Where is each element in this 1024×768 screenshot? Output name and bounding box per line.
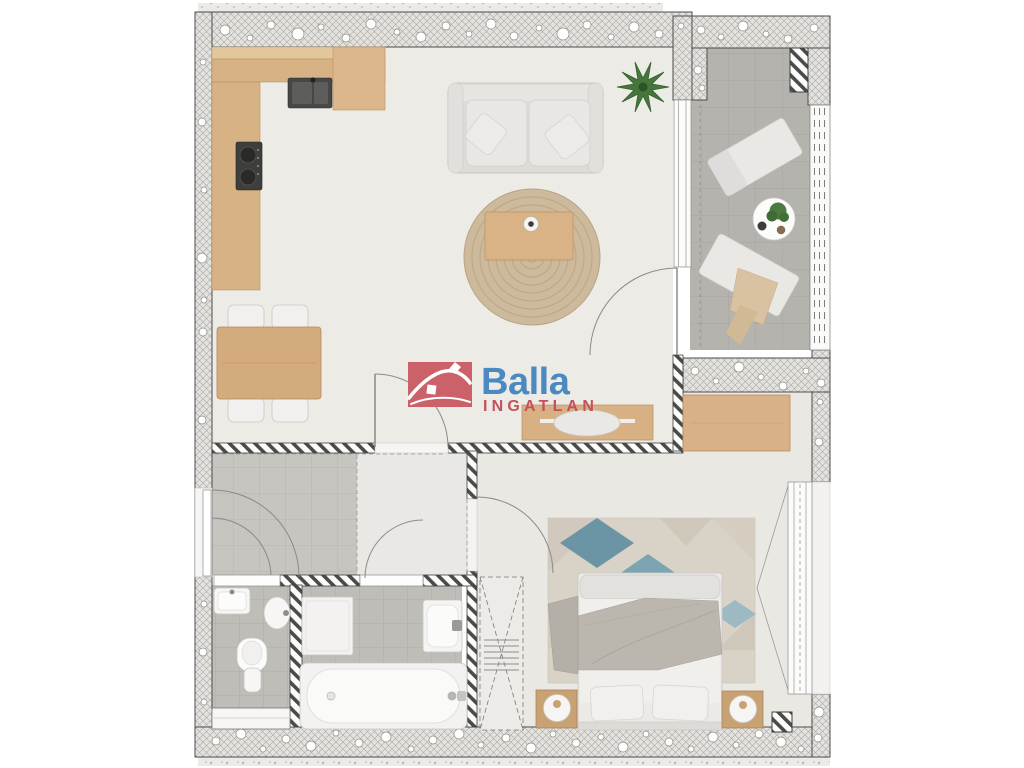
insulation-beads-bottom [355, 739, 363, 747]
dining-chair [228, 397, 264, 422]
insulation-beads-bedwall [734, 362, 744, 372]
wall-bedroom-top [683, 358, 830, 392]
wc-door-leaf [214, 575, 280, 586]
cooktop-burner [240, 147, 256, 163]
bath-door-leaf [360, 575, 423, 586]
balcony-plant [767, 211, 778, 222]
wc-basin-faucet [230, 590, 235, 595]
insulation-beads-top [442, 22, 450, 30]
insulation-beads-bottom [306, 741, 316, 751]
bedroom-window-sill [812, 482, 830, 694]
insulation-beads-bottom [598, 734, 604, 740]
insulation-beads-top [784, 35, 792, 43]
insulation-beads-top [678, 23, 684, 29]
house-window-icon [426, 385, 436, 395]
insulation-beads-bedwall [779, 382, 787, 390]
insulation-beads-bottom [755, 730, 763, 738]
sink-basin [292, 82, 312, 104]
insulation-beads-top [697, 26, 705, 34]
corner-pillar [790, 48, 808, 92]
toilet-base [244, 668, 261, 692]
plant-center [639, 83, 648, 92]
insulation-beads-top [416, 32, 426, 42]
insulation-beads-top [699, 85, 705, 91]
insulation-beads-top [738, 21, 748, 31]
bed-headboard [578, 722, 722, 730]
insulation-beads-left [197, 253, 207, 263]
sofa-back [452, 85, 599, 101]
kitchen-tall-cabinet [333, 47, 385, 110]
balcony-cup [777, 226, 785, 234]
insulation-beads-left [200, 59, 206, 65]
sofa-armrest [448, 83, 463, 173]
bed-pillow [652, 685, 709, 722]
wall-living-hall-right [448, 443, 683, 453]
wall-living-bedroom [673, 355, 683, 451]
cooktop-burner [240, 169, 256, 185]
wall-bath-bedroom [467, 571, 477, 727]
brand-text: Balla [481, 361, 571, 403]
insulation-beads-bottom [733, 742, 739, 748]
insulation-beads-bottom [333, 730, 339, 736]
insulation-beads-right [817, 399, 823, 405]
insulation-beads-top [220, 25, 230, 35]
bathtub-faucet [448, 692, 457, 701]
insulation-beads-bottom [260, 746, 266, 752]
insulation-beads-bottom [381, 732, 391, 742]
lamp-knob [739, 701, 747, 709]
insulation-beads-bottom [212, 737, 220, 745]
shower-tray [302, 597, 353, 655]
insulation-beads-top [510, 32, 518, 40]
insulation-beads-bottom [236, 729, 246, 739]
cooktop-knob [257, 173, 259, 175]
balcony-plant [779, 212, 789, 222]
wall-balcony-right [808, 48, 830, 105]
cooktop-knob [257, 149, 259, 151]
insulation-beads-bottom [526, 743, 536, 753]
insulation-beads-bedwall [817, 379, 825, 387]
insulation-beads-top [608, 34, 614, 40]
insulation-beads-bottom [776, 737, 786, 747]
insulation-beads-top [810, 24, 818, 32]
bath-basin-faucet [452, 620, 462, 631]
insulation-beads-bottom [688, 746, 694, 752]
insulation-beads-left [201, 699, 207, 705]
insulation-beads-bottom [282, 735, 290, 743]
insulation-beads-bottom [643, 731, 649, 737]
dining-chair [272, 397, 308, 422]
sink-faucet [311, 78, 316, 83]
insulation-beads-top [694, 66, 702, 74]
wall-hall-bottom-mid [280, 575, 360, 586]
coffee-cup-dot [528, 221, 534, 227]
cooktop-knob [257, 165, 259, 167]
insulation-beads-top [655, 30, 663, 38]
wall-right-lower [812, 694, 830, 757]
insulation-beads-top [763, 31, 769, 37]
corner-detail [772, 712, 792, 732]
insulation-beads-left [201, 297, 207, 303]
bed-footboard [580, 575, 720, 599]
wc-corner-basin-faucet [283, 610, 289, 616]
insulation-beads-top [292, 28, 304, 40]
insulation-beads-right [815, 438, 823, 446]
bathtub-spout [457, 691, 466, 701]
insulation-beads-top [318, 24, 324, 30]
insulation-beads-bottom [408, 746, 414, 752]
insulation-beads-bedwall [758, 374, 764, 380]
closet [480, 577, 523, 730]
insulation-beads-left [198, 118, 206, 126]
wall-hall-bottom-right [423, 575, 477, 586]
insulation-beads-top [366, 19, 376, 29]
balcony-cup [758, 222, 767, 231]
dining-chair [228, 305, 264, 330]
sink-basin [314, 82, 328, 104]
insulation-beads-top [342, 34, 350, 42]
brand-subtitle-text: INGATLAN [483, 398, 598, 415]
bed-pillow [590, 685, 644, 722]
insulation-beads-bottom [708, 732, 718, 742]
living-door-threshold [375, 443, 448, 453]
wall-living-hall-left [212, 443, 375, 453]
insulation-beads-top [247, 35, 253, 41]
corridor-floor [357, 453, 467, 575]
insulation-beads-bottom [665, 738, 673, 746]
dining-chair [272, 305, 308, 330]
insulation-beads-top [536, 25, 542, 31]
insulation-beads-left [199, 328, 207, 336]
insulation-beads-bottom [618, 742, 628, 752]
insulation-beads-top [718, 34, 724, 40]
toilet-bowl [242, 641, 262, 665]
lamp-knob [553, 700, 561, 708]
insulation-beads-bottom [454, 729, 464, 739]
wc-basin-inner [218, 592, 246, 610]
insulation-beads-left [201, 601, 207, 607]
insulation-beads-bottom [478, 742, 484, 748]
insulation-beads-left [201, 187, 207, 193]
insulation-beads-left [199, 648, 207, 656]
insulation-beads-top [267, 21, 275, 29]
insulation-beads-bottom [814, 734, 822, 742]
insulation-beads-bottom [502, 734, 510, 742]
insulation-beads-right [814, 707, 824, 717]
insulation-beads-top [629, 22, 639, 32]
insulation-beads-top [557, 28, 569, 40]
insulation-beads-bedwall [803, 368, 809, 374]
wall-top-balcony [692, 16, 830, 48]
insulation-beads-top [466, 31, 472, 37]
floor-plan-image: Balla INGATLAN [0, 0, 1024, 768]
floor-plan-canvas: Balla INGATLAN [0, 0, 1024, 768]
bedroom-door-threshold [467, 499, 477, 571]
insulation-beads-top [486, 19, 496, 29]
insulation-beads-bottom [798, 746, 804, 752]
insulation-beads-bottom [550, 731, 556, 737]
insulation-beads-top [583, 21, 591, 29]
wall-corridor-bedroom-top [467, 451, 477, 499]
entrance-door-leaf [203, 490, 211, 576]
insulation-beads-bottom [429, 736, 437, 744]
cooktop-knob [257, 157, 259, 159]
insulation-beads-bedwall [713, 378, 719, 384]
balcony-window [674, 100, 691, 267]
insulation-beads-bedwall [691, 367, 699, 375]
edge-noise-bottom [198, 757, 830, 766]
insulation-beads-left [198, 416, 206, 424]
insulation-beads-top [394, 29, 400, 35]
bathtub-drain [327, 692, 335, 700]
hall-floor [212, 453, 357, 575]
insulation-beads-bottom [572, 739, 580, 747]
